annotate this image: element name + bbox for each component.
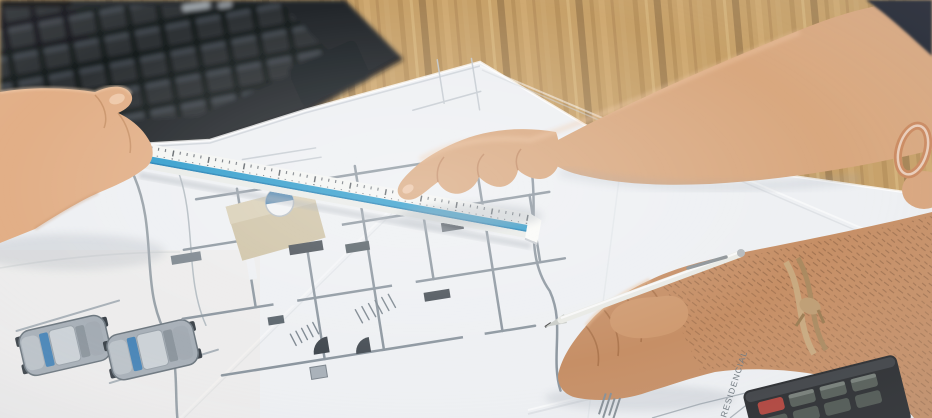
lighting-vignette [0,0,932,418]
photo-architects-blueprint: RESIDENCIAL [0,0,932,418]
photo-canvas: RESIDENCIAL [0,0,932,418]
